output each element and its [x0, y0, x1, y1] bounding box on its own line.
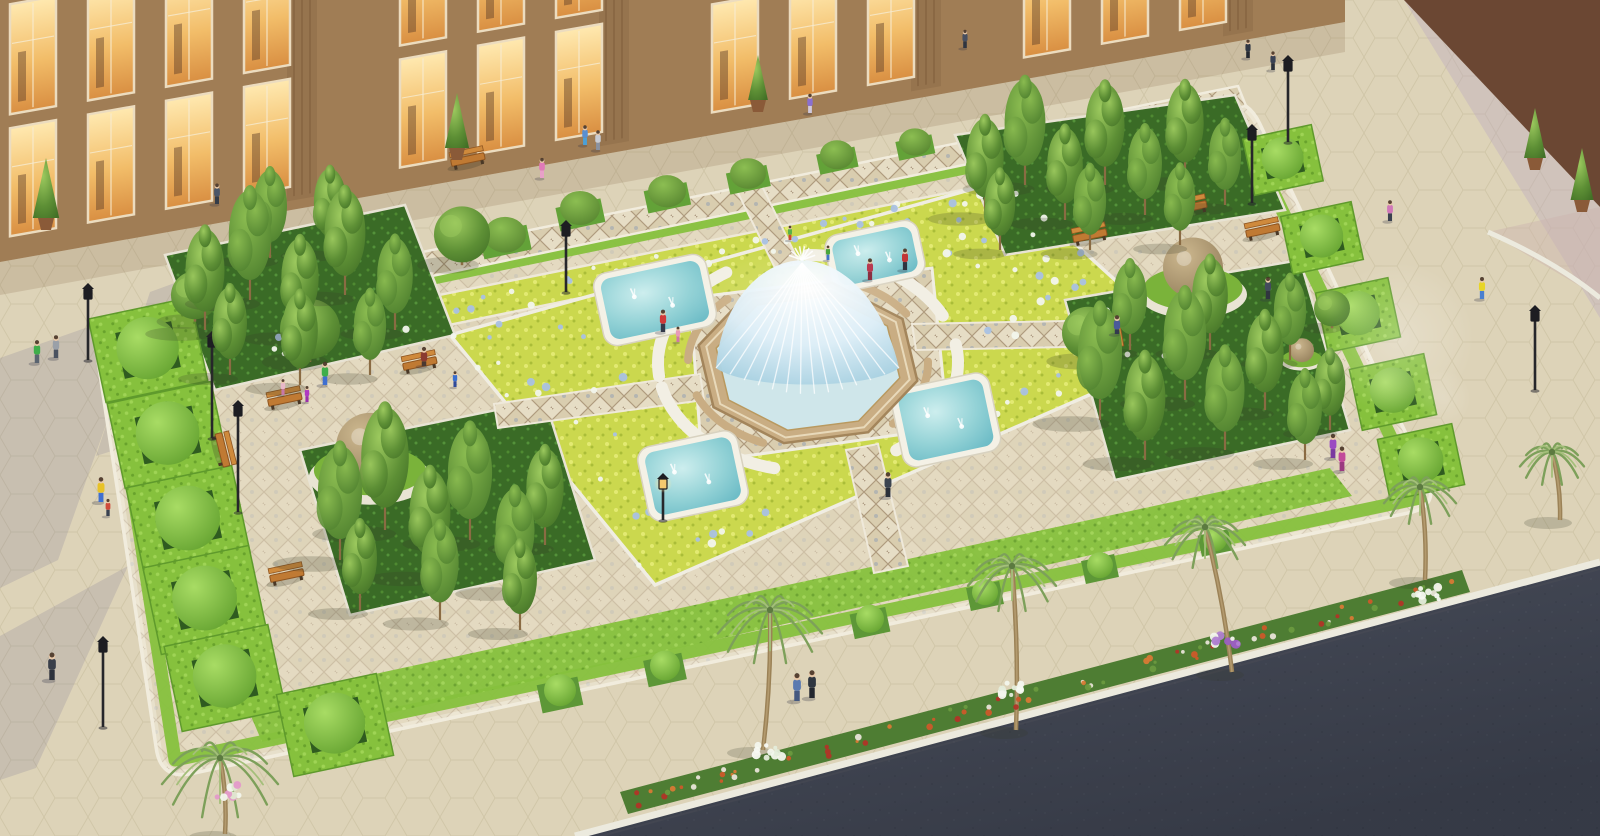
scene-svg — [0, 0, 1600, 836]
flower-cluster-bloom — [1433, 583, 1442, 592]
dome-topiary — [484, 217, 526, 253]
hydrangea-bloom — [1012, 267, 1017, 272]
tree-crown-top — [355, 518, 366, 538]
flower-cluster-bloom — [998, 690, 1007, 699]
tree-crown-lobe — [360, 450, 388, 498]
tree-crown-top — [509, 484, 522, 507]
person-hair — [1388, 200, 1392, 204]
window-interior-silhouette — [1188, 0, 1196, 18]
flower-cluster-bloom — [1425, 589, 1432, 596]
hydrangea-bloom — [962, 201, 968, 207]
palm-shadow — [1196, 669, 1244, 681]
palm-crown-center — [217, 755, 223, 761]
palm-crown-center — [1009, 563, 1015, 569]
tree-crown-top — [1285, 273, 1295, 292]
tree-crown-lobe — [1003, 117, 1027, 158]
tree-crown-lobe — [1164, 194, 1182, 225]
tree-crown-lobe — [281, 325, 302, 361]
hydrangea-bloom — [1080, 279, 1087, 286]
hydrangea-bloom — [695, 537, 700, 542]
window-interior-silhouette — [486, 91, 494, 141]
tree-shadow — [272, 556, 350, 572]
strip-flower — [962, 709, 967, 714]
person-legs — [808, 106, 812, 113]
person-torso — [106, 503, 111, 510]
strip-flower — [691, 784, 697, 790]
person-legs — [886, 488, 891, 497]
tree-crown-top — [1220, 118, 1230, 137]
person-hair — [868, 258, 872, 262]
window-interior-silhouette — [18, 51, 26, 102]
person-hair — [596, 130, 600, 134]
person-torso — [1265, 282, 1271, 291]
person-torso — [98, 483, 105, 493]
hydrangea-bloom — [451, 333, 457, 339]
window-interior-silhouette — [174, 23, 182, 74]
flower-cluster-bloom — [1236, 641, 1241, 646]
strip-flower — [1398, 601, 1404, 607]
person-torso — [902, 253, 908, 262]
window-interior-silhouette — [876, 23, 884, 73]
tree-crown-top — [225, 283, 236, 303]
flower-cluster-bloom — [754, 747, 760, 753]
person-legs — [99, 493, 104, 502]
tree-crown-lobe — [1073, 196, 1092, 228]
person-torso — [1479, 282, 1485, 291]
hydrangea-bloom — [943, 249, 951, 257]
person-torso — [1330, 439, 1337, 449]
person-legs — [106, 510, 109, 516]
hydrangea-bloom — [632, 512, 639, 519]
tree-crown-top — [1175, 162, 1185, 180]
person-torso — [788, 229, 792, 235]
person-hair — [827, 245, 830, 248]
lamp-lantern — [1248, 130, 1256, 140]
hydrangea-bloom — [581, 334, 586, 339]
hydrangea-bloom — [856, 221, 863, 228]
person-torso — [867, 263, 873, 272]
strip-flower — [786, 756, 791, 761]
tree-crown-lobe — [420, 557, 442, 594]
tree-crown-lobe — [342, 553, 362, 587]
person-legs — [54, 350, 58, 358]
tree-crown-lobe — [1123, 392, 1147, 433]
strip-flower — [1146, 655, 1153, 662]
hydrangea-bloom — [598, 477, 603, 482]
strip-flower — [636, 803, 642, 809]
strip-flower — [1449, 579, 1454, 584]
strip-flower — [863, 740, 869, 746]
person-hair — [306, 386, 309, 389]
person-hair — [794, 673, 799, 678]
tree-crown-top — [1018, 75, 1031, 99]
tree-crown-lobe — [1163, 329, 1188, 372]
person-hair — [886, 472, 890, 476]
person-legs — [1115, 329, 1119, 334]
tree-crown-top — [389, 233, 401, 254]
hydrangea-bloom — [453, 308, 459, 314]
person-legs — [794, 691, 799, 701]
strip-flower — [1026, 697, 1032, 703]
lamp-lantern — [1531, 311, 1539, 321]
person-torso — [421, 352, 427, 361]
window-interior-silhouette — [1032, 0, 1040, 45]
hydrangea-bloom — [753, 237, 760, 244]
hydrangea-bloom — [654, 254, 659, 259]
tree-crown-top — [1085, 163, 1095, 182]
strip-flower — [1340, 605, 1344, 609]
dome-topiary — [730, 158, 766, 189]
strip-flower — [670, 786, 676, 792]
tree-crown-top — [515, 538, 526, 558]
strip-flower — [680, 785, 684, 789]
tree-crown-lobe — [228, 229, 253, 272]
person-legs — [422, 361, 427, 366]
person-shadow — [785, 240, 792, 242]
hydrangea-bloom — [402, 326, 409, 333]
person-legs — [963, 41, 967, 48]
hydrangea-bloom — [762, 509, 770, 517]
person-shadow — [102, 516, 110, 519]
person-torso — [808, 676, 816, 687]
flower-cluster-bloom — [1005, 681, 1010, 686]
person-hair — [1266, 277, 1270, 281]
tree-crown-top — [243, 185, 257, 210]
hydrangea-bloom — [708, 539, 717, 548]
person-legs — [49, 670, 54, 680]
hydrangea-bloom — [558, 324, 563, 329]
tree-shadow — [1032, 416, 1110, 432]
person-torso — [885, 478, 892, 488]
palm-shadow — [980, 727, 1028, 739]
person-hair — [215, 183, 219, 187]
strip-flower — [733, 770, 736, 773]
tree-crown-top — [463, 420, 477, 446]
tree-crown-top — [1178, 285, 1192, 310]
tree-crown-lobe — [984, 199, 1002, 230]
person-legs — [281, 389, 284, 395]
flower-cluster-bloom — [215, 794, 220, 799]
strip-flower — [1335, 614, 1339, 618]
strip-flower — [1289, 627, 1295, 633]
strip-flower — [755, 768, 760, 773]
person-shadow — [301, 402, 309, 405]
window-interior-silhouette — [96, 160, 104, 210]
person-hair — [1480, 277, 1484, 281]
window-interior-silhouette — [1110, 0, 1118, 31]
hydrangea-bloom — [591, 387, 597, 393]
hydrangea-bloom — [1037, 297, 1045, 305]
flower-cluster-bloom — [1012, 685, 1017, 690]
person-torso — [305, 390, 309, 397]
flower-cluster-bloom — [1230, 636, 1234, 640]
strip-flower — [1013, 704, 1019, 710]
hydrangea-bloom — [1011, 331, 1019, 339]
tree-crown-top — [1204, 253, 1216, 274]
strip-flower — [926, 723, 933, 730]
strip-flower — [720, 772, 726, 778]
person-hair — [422, 347, 426, 351]
flower-cluster-bloom — [764, 755, 770, 761]
strip-flower — [1262, 625, 1267, 630]
hydrangea-bloom — [1056, 373, 1061, 378]
hydrangea-bloom — [535, 390, 542, 397]
tree-crown-lobe — [1208, 151, 1227, 183]
strip-flower — [788, 751, 793, 756]
palm-crown-center — [767, 607, 773, 613]
strip-flower — [1181, 650, 1185, 654]
person-hair — [50, 652, 55, 657]
edge-ball-topiary — [544, 674, 576, 706]
person-torso — [34, 345, 40, 354]
strip-flower — [1034, 687, 1039, 692]
person-hair — [1246, 40, 1249, 43]
person-legs — [215, 196, 219, 204]
hydrangea-bloom — [869, 221, 874, 226]
strip-flower — [1326, 621, 1331, 626]
tree-crown-lobe — [965, 152, 987, 189]
strip-flower — [665, 790, 670, 795]
person-legs — [453, 381, 456, 387]
person-shadow — [277, 395, 285, 398]
person-torso — [539, 162, 545, 170]
person-torso — [826, 249, 830, 255]
hydrangea-bloom — [792, 236, 798, 242]
tree-shadow — [321, 373, 378, 384]
tree-crown-lobe — [1046, 160, 1067, 196]
round-canopy-tree — [434, 206, 490, 262]
strip-flower — [1153, 661, 1156, 664]
hydrangea-bloom — [496, 321, 503, 328]
person-hair — [1340, 447, 1344, 451]
tree-crown-lobe — [212, 318, 232, 352]
tree-shadow — [1133, 244, 1187, 255]
tree-shadow — [145, 327, 214, 341]
strip-flower — [948, 707, 952, 711]
person-legs — [596, 143, 600, 150]
hydrangea-bloom — [528, 302, 535, 309]
person-legs — [540, 171, 544, 178]
person-legs — [1480, 291, 1484, 299]
person-legs — [903, 262, 907, 270]
strip-flower — [720, 779, 724, 783]
tree-crown-lobe — [1165, 117, 1187, 154]
tree-crown-top — [995, 167, 1005, 185]
tree-shadow — [1041, 248, 1098, 259]
person-torso — [582, 130, 587, 138]
hydrangea-bloom — [574, 420, 579, 425]
lamp-lantern — [99, 642, 107, 652]
tree-crown-top — [294, 234, 306, 256]
hydrangea-bloom — [613, 432, 617, 436]
tree-crown-lobe — [184, 264, 207, 303]
tree-crown-lobe — [1077, 346, 1103, 390]
strip-flower — [1350, 616, 1354, 620]
tree-shadow — [1165, 447, 1234, 461]
tree-crown-top — [1179, 79, 1191, 101]
hydrangea-bloom — [1020, 388, 1028, 396]
strip-flower — [634, 790, 639, 795]
person-legs — [1331, 449, 1336, 458]
person-legs — [35, 355, 40, 363]
palm-shadow — [1524, 517, 1572, 529]
window-interior-silhouette — [408, 0, 416, 33]
edge-ball-topiary — [1087, 552, 1113, 578]
tree-crown-top — [1059, 123, 1071, 144]
person-hair — [282, 379, 285, 382]
flower-cluster-bloom — [1437, 597, 1441, 601]
strip-flower — [1260, 633, 1266, 639]
hydrangea-bloom — [509, 289, 515, 295]
strip-flower — [1252, 636, 1257, 641]
strip-flower — [1195, 657, 1198, 660]
person-torso — [322, 367, 328, 377]
hydrangea-bloom — [504, 393, 508, 397]
hydrangea-bloom — [467, 305, 474, 312]
person-hair — [1115, 315, 1119, 319]
tree-crown-lobe — [447, 466, 473, 510]
strip-flower — [855, 734, 862, 741]
person-torso — [1245, 44, 1250, 52]
strip-flower — [1270, 633, 1276, 639]
person-legs — [1271, 63, 1275, 70]
person-hair — [54, 335, 58, 339]
person-legs — [323, 376, 328, 385]
window-interior-silhouette — [252, 133, 260, 183]
tree-crown-top — [333, 440, 347, 466]
tree-crown-top — [434, 519, 446, 541]
hydrangea-bloom — [481, 295, 486, 300]
strip-flower — [985, 709, 992, 716]
hydrangea-bloom — [959, 233, 966, 240]
strip-flower — [1175, 650, 1179, 654]
hydrangea-bloom — [1071, 284, 1079, 292]
hydrangea-bloom — [820, 220, 827, 227]
hydrangea-bloom — [566, 278, 572, 284]
tree-crown-lobe — [353, 321, 372, 353]
sphere-highlight — [1177, 251, 1192, 266]
hydrangea-bloom — [719, 528, 725, 534]
window-interior-silhouette — [96, 37, 104, 88]
person-hair — [583, 125, 587, 129]
flower-cluster-bloom — [1009, 693, 1013, 697]
person-legs — [789, 235, 792, 240]
flower-cluster-bloom — [1418, 586, 1423, 591]
person-shadow — [672, 342, 680, 345]
hydrangea-bloom — [975, 264, 980, 269]
hydrangea-bloom — [842, 217, 846, 221]
person-hair — [1331, 434, 1335, 438]
flower-cluster-bloom — [767, 749, 774, 756]
hydrangea-bloom — [1056, 390, 1062, 396]
window-interior-silhouette — [174, 147, 182, 197]
strip-flower — [1081, 681, 1086, 686]
hydrangea-bloom — [496, 361, 500, 365]
person-torso — [48, 659, 56, 670]
hydrangea-bloom — [636, 562, 641, 567]
flower-cluster-bloom — [1017, 681, 1024, 688]
flower-cluster-bloom — [764, 743, 768, 747]
hydrangea-bloom — [949, 199, 957, 207]
lamp-lantern — [1284, 61, 1292, 71]
palm-shadow — [1389, 577, 1437, 589]
strip-flower — [986, 705, 991, 710]
person-legs — [827, 255, 830, 260]
palm-crown-center — [1417, 484, 1423, 490]
tree-crown-top — [539, 444, 551, 466]
strip-flower — [825, 745, 829, 749]
window-interior-silhouette — [564, 78, 572, 128]
strip-flower — [964, 705, 968, 709]
strip-flower — [955, 716, 961, 722]
strip-flower — [1368, 599, 1373, 604]
person-hair — [808, 94, 811, 97]
person-hair — [454, 371, 457, 374]
person-torso — [962, 34, 967, 41]
tree-crown-lobe — [1287, 403, 1307, 437]
hydrangea-bloom — [619, 373, 628, 382]
person-hair — [1271, 51, 1274, 54]
hydrangea-bloom — [709, 530, 717, 538]
hydrangea-bloom — [1035, 272, 1043, 280]
flower-cluster-bloom — [773, 749, 780, 756]
tree-crown-top — [1125, 258, 1136, 278]
window-interior-silhouette — [720, 50, 728, 100]
tree-crown-lobe — [1084, 119, 1107, 158]
person-legs — [676, 336, 679, 342]
sphere-highlight — [1295, 344, 1301, 350]
canopy-highlight — [440, 215, 462, 237]
flower-cluster-bloom — [220, 793, 228, 801]
person-hair — [809, 670, 814, 675]
dome-topiary — [560, 191, 600, 225]
tree-crown-top — [325, 165, 335, 184]
hydrangea-bloom — [890, 205, 897, 212]
tree-crown-lobe — [1245, 347, 1267, 384]
person-hair — [661, 310, 665, 314]
person-legs — [809, 688, 814, 698]
lamp-lantern — [84, 289, 92, 299]
strip-flower — [932, 718, 935, 721]
tree-crown-top — [423, 465, 436, 489]
flower-cluster-bloom — [233, 781, 241, 789]
tree-crown-top — [1219, 344, 1232, 367]
flower-cluster-bloom — [1411, 593, 1416, 598]
person-legs — [1340, 462, 1345, 471]
person-torso — [453, 375, 457, 381]
person-torso — [1270, 56, 1275, 64]
hydrangea-bloom — [981, 238, 987, 244]
hydrangea-bloom — [542, 383, 551, 392]
edge-ball-topiary — [650, 651, 680, 681]
person-hair — [677, 327, 680, 330]
strip-flower — [1318, 621, 1324, 627]
person-torso — [807, 98, 812, 106]
dome-topiary — [648, 175, 686, 207]
strip-flower — [1198, 645, 1202, 649]
person-legs — [868, 272, 872, 280]
hydrangea-bloom — [527, 378, 535, 386]
window-interior-silhouette — [408, 105, 416, 155]
rendering-stage — [0, 0, 1600, 836]
palm-crown-center — [1202, 524, 1208, 530]
hydrangea-bloom — [762, 238, 768, 244]
person-torso — [660, 315, 666, 324]
tree-crown-lobe — [323, 227, 347, 268]
hydrangea-bloom — [591, 266, 595, 270]
flower-cluster-bloom — [1211, 637, 1220, 646]
tree-crown-lobe — [317, 486, 343, 530]
